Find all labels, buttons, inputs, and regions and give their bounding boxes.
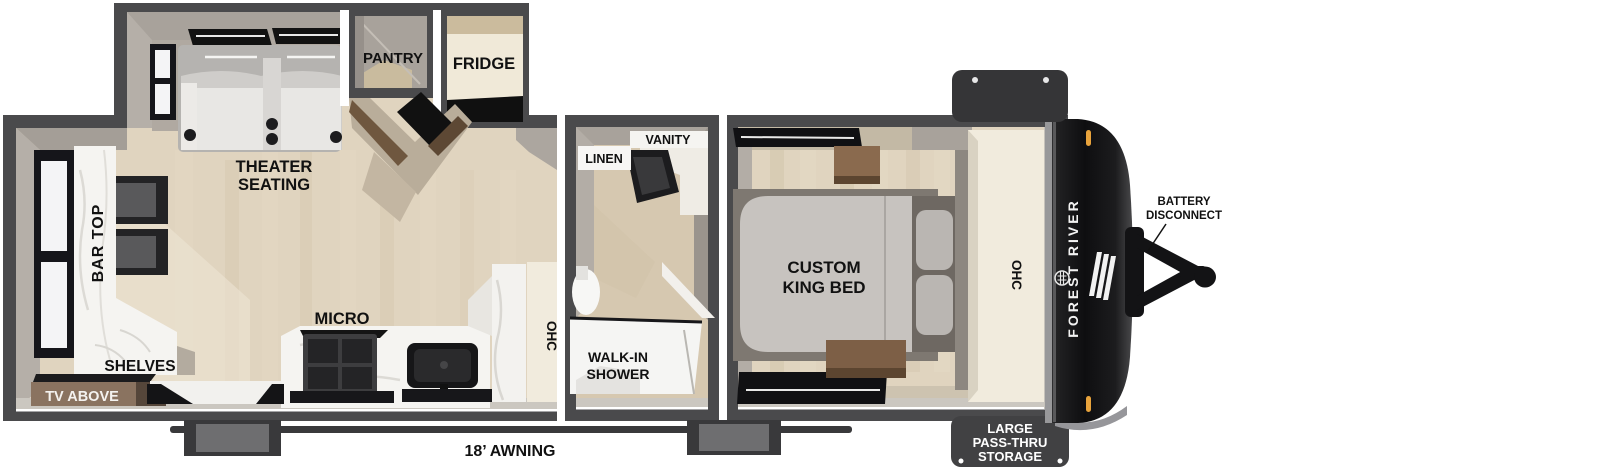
svg-text:VANITY: VANITY <box>646 133 692 147</box>
svg-text:SHELVES: SHELVES <box>104 358 175 375</box>
svg-text:18’ AWNING: 18’ AWNING <box>465 443 556 460</box>
svg-text:FOREST RIVER: FOREST RIVER <box>1065 198 1081 337</box>
svg-text:OHC: OHC <box>1009 260 1024 290</box>
svg-text:BAR TOP: BAR TOP <box>90 204 107 283</box>
svg-text:WALK-IN: WALK-IN <box>588 349 648 365</box>
svg-text:BATTERY: BATTERY <box>1157 196 1210 208</box>
svg-text:DISCONNECT: DISCONNECT <box>1146 210 1222 222</box>
svg-text:PASS-THRU: PASS-THRU <box>973 435 1048 450</box>
svg-text:OHC: OHC <box>544 321 559 351</box>
svg-text:TV ABOVE: TV ABOVE <box>45 389 119 405</box>
svg-text:SEATING: SEATING <box>238 176 310 194</box>
svg-text:MICRO: MICRO <box>315 310 370 328</box>
svg-text:STORAGE: STORAGE <box>978 449 1042 464</box>
svg-text:KING BED: KING BED <box>782 278 865 297</box>
svg-text:LINEN: LINEN <box>585 152 623 166</box>
svg-text:SHOWER: SHOWER <box>587 366 650 382</box>
svg-text:THEATER: THEATER <box>236 158 313 176</box>
svg-text:LARGE: LARGE <box>987 421 1033 436</box>
svg-text:PANTRY: PANTRY <box>363 50 423 67</box>
svg-text:FRIDGE: FRIDGE <box>453 55 515 73</box>
svg-text:CUSTOM: CUSTOM <box>787 258 860 277</box>
